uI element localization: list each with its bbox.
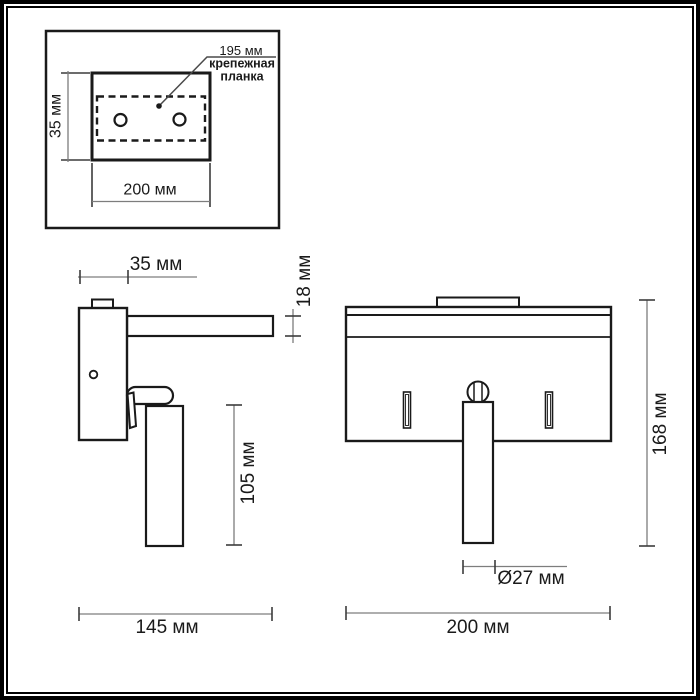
side-top-arm xyxy=(127,316,273,336)
leader-dot xyxy=(156,103,162,109)
front-tube-diameter-dimension: Ø27 мм xyxy=(497,569,564,589)
dimension-drawing-canvas: 195 мм крепежная планка 35 мм 200 мм 35 … xyxy=(0,0,700,700)
side-tube-length-dimension: 105 мм xyxy=(239,441,259,504)
front-height-dimension: 168 мм xyxy=(651,392,671,455)
side-lamp-tube xyxy=(146,406,183,546)
lamp-side-view xyxy=(78,270,301,621)
inset-part-label-line1: крепежная xyxy=(209,58,275,71)
front-pivot-circle xyxy=(468,382,489,403)
screw-hole-right xyxy=(174,114,186,126)
side-total-width-dimension: 145 мм xyxy=(135,618,198,638)
side-mount-tab xyxy=(92,300,113,309)
screw-hole-left xyxy=(115,114,127,126)
side-depth-dimension: 35 мм xyxy=(130,255,183,275)
inset-height-dimension: 35 мм xyxy=(49,94,66,138)
side-wall-bracket xyxy=(79,308,127,440)
side-hinge-clip xyxy=(128,393,137,429)
mounting-plate-outline xyxy=(92,73,210,160)
mounting-strip-dashed-outline xyxy=(97,97,205,141)
front-mount-tab xyxy=(437,298,519,308)
inset-part-label: крепежная планка xyxy=(209,58,275,83)
front-lamp-tube xyxy=(463,402,493,543)
inset-part-label-line2: планка xyxy=(209,70,275,83)
side-arm-height-dimension: 18 мм xyxy=(295,255,315,308)
drawing-linework xyxy=(0,0,700,700)
front-width-dimension: 200 мм xyxy=(446,618,509,638)
inset-width-dimension: 200 мм xyxy=(123,183,176,200)
